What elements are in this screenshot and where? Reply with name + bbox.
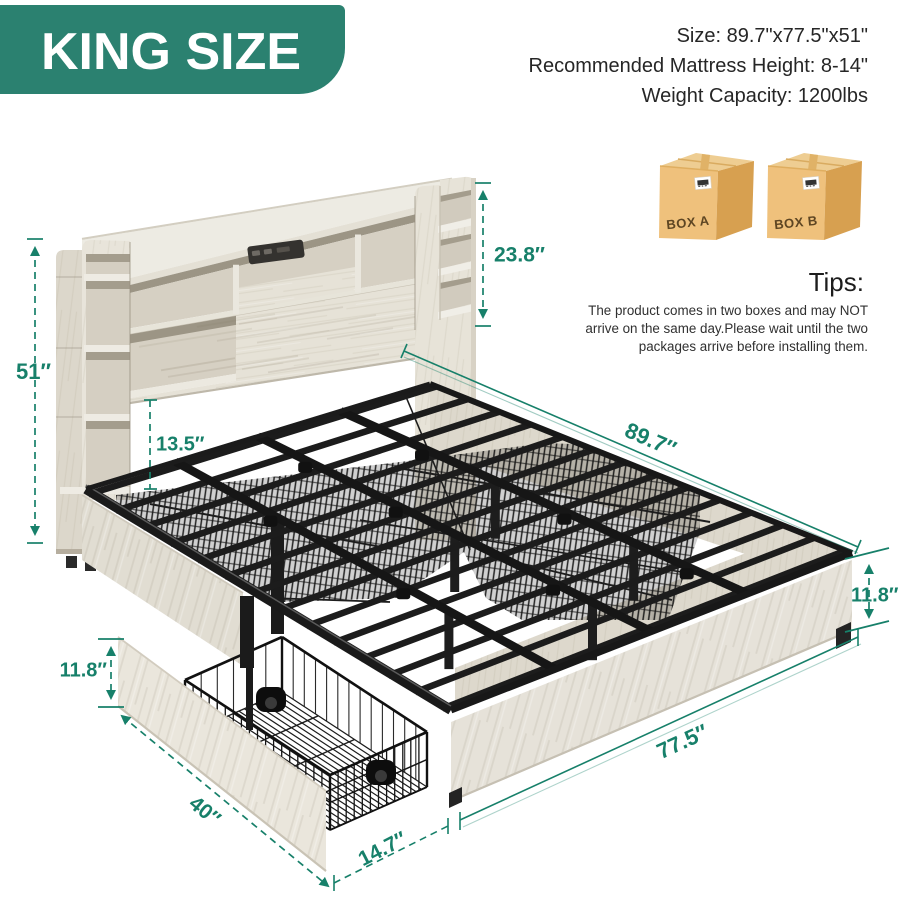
- svg-text:51″: 51″: [16, 359, 51, 384]
- svg-text:11.8″: 11.8″: [851, 584, 899, 606]
- svg-text:40″: 40″: [184, 792, 224, 831]
- svg-text:11.8″: 11.8″: [60, 659, 108, 681]
- svg-text:14.7″: 14.7″: [355, 827, 411, 871]
- svg-text:23.8″: 23.8″: [494, 244, 545, 267]
- svg-text:13.5″: 13.5″: [156, 433, 205, 455]
